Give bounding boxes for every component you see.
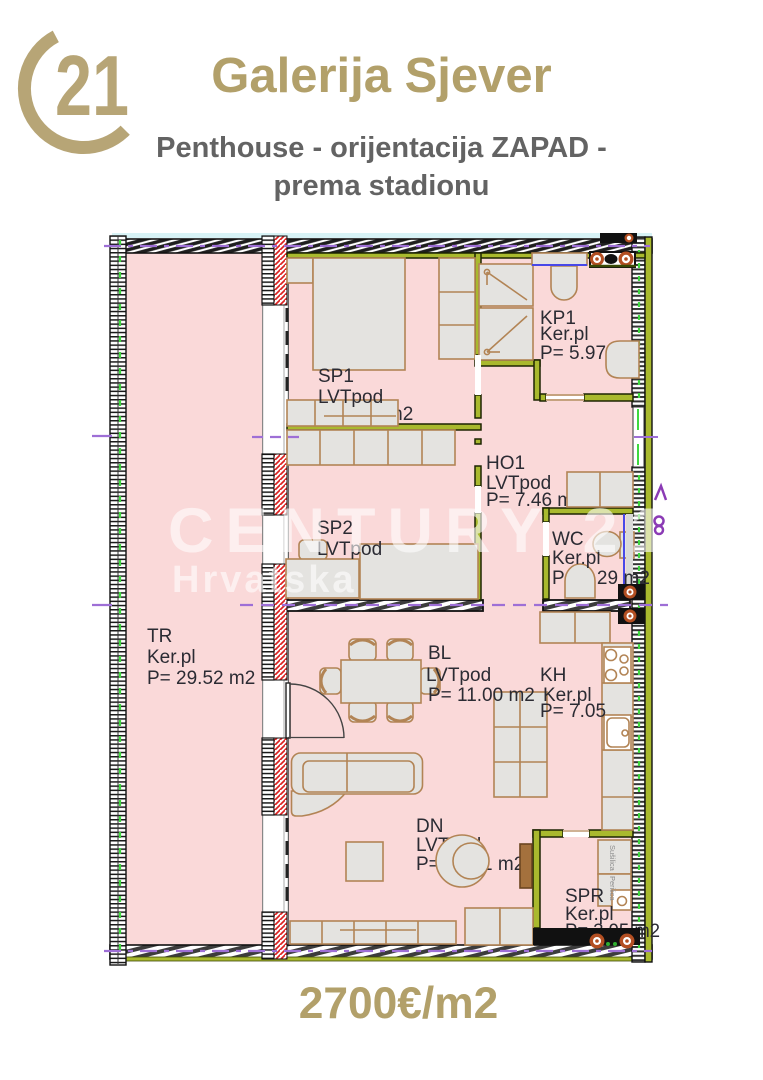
svg-text:m2: m2 <box>624 568 650 589</box>
svg-text:LVTpod: LVTpod <box>318 387 383 408</box>
svg-text:DN: DN <box>416 816 443 837</box>
svg-text:Perilica: Perilica <box>608 876 617 901</box>
svg-text:P= 7.05: P= 7.05 <box>540 701 606 722</box>
svg-text:P= 29.52 m2: P= 29.52 m2 <box>147 668 255 689</box>
svg-text:P= 11.00 m2: P= 11.00 m2 <box>428 685 535 706</box>
svg-text:LVTpod: LVTpod <box>486 473 551 494</box>
svg-text:HO1: HO1 <box>486 453 525 474</box>
svg-text:P= 5.97: P= 5.97 <box>540 343 606 364</box>
svg-text:CENTURY 21: CENTURY 21 <box>168 496 677 566</box>
svg-text:LVTpod: LVTpod <box>426 665 491 686</box>
svg-text:Sušilica: Sušilica <box>608 845 617 872</box>
svg-text:SP1: SP1 <box>318 366 354 387</box>
svg-text:TR: TR <box>147 626 172 647</box>
svg-text:KH: KH <box>540 665 566 686</box>
svg-text:Ker.pl: Ker.pl <box>147 647 196 668</box>
svg-text:Hrvatska: Hrvatska <box>172 559 357 601</box>
svg-text:BL: BL <box>428 643 451 664</box>
svg-text:Ker.pl: Ker.pl <box>540 324 589 345</box>
